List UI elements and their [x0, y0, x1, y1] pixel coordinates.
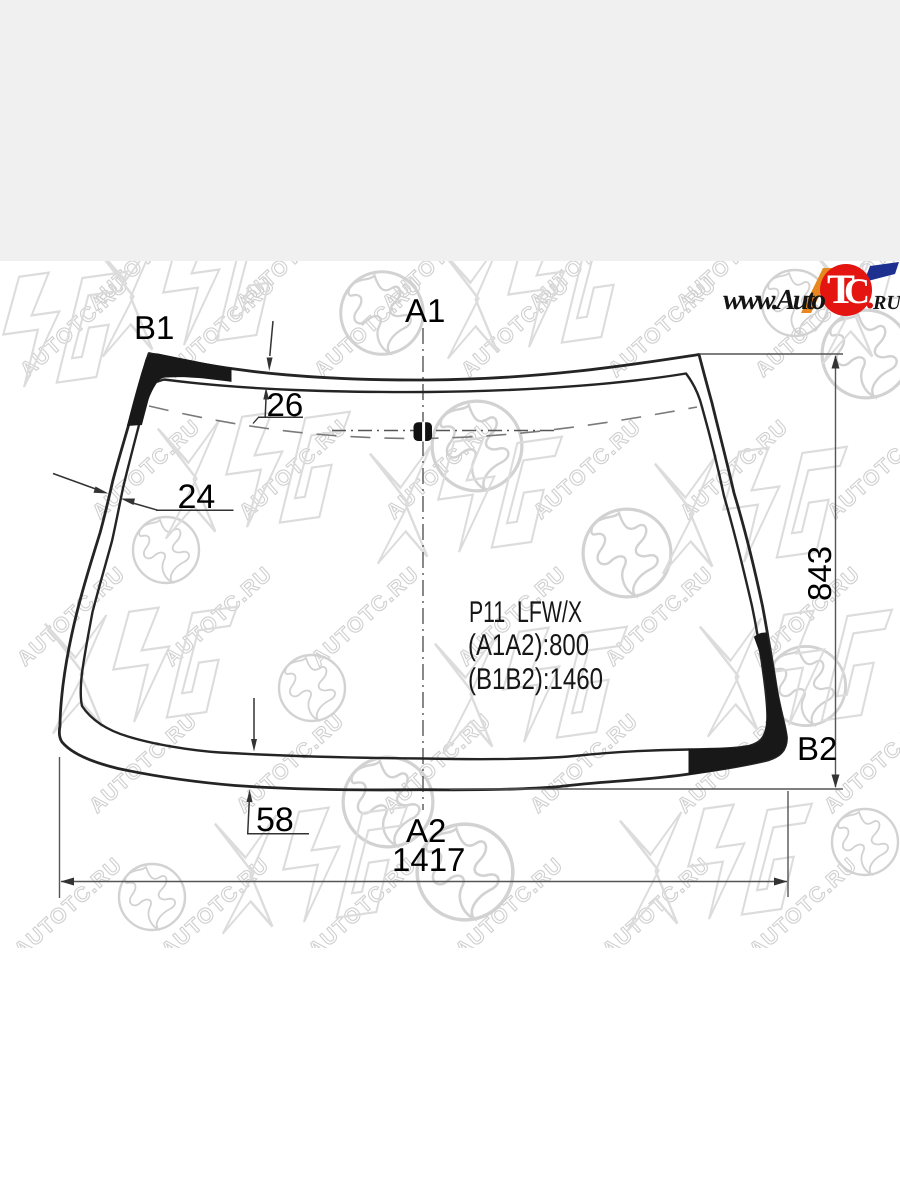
svg-text:(A1A2):800: (A1A2):800	[468, 629, 589, 662]
svg-text:B1: B1	[134, 309, 174, 346]
svg-text:C: C	[844, 271, 870, 311]
svg-text:P11 LFW/X: P11 LFW/X	[469, 596, 582, 629]
svg-text:B2: B2	[797, 730, 837, 767]
svg-text:843: 843	[801, 546, 838, 601]
svg-text:1417: 1417	[392, 841, 465, 878]
svg-text:24: 24	[178, 478, 216, 516]
svg-text:A1: A1	[405, 292, 445, 329]
svg-text:(B1B2):1460: (B1B2):1460	[468, 663, 603, 696]
svg-text:www.Auto: www.Auto	[723, 284, 826, 316]
svg-text:RU: RU	[872, 292, 900, 314]
